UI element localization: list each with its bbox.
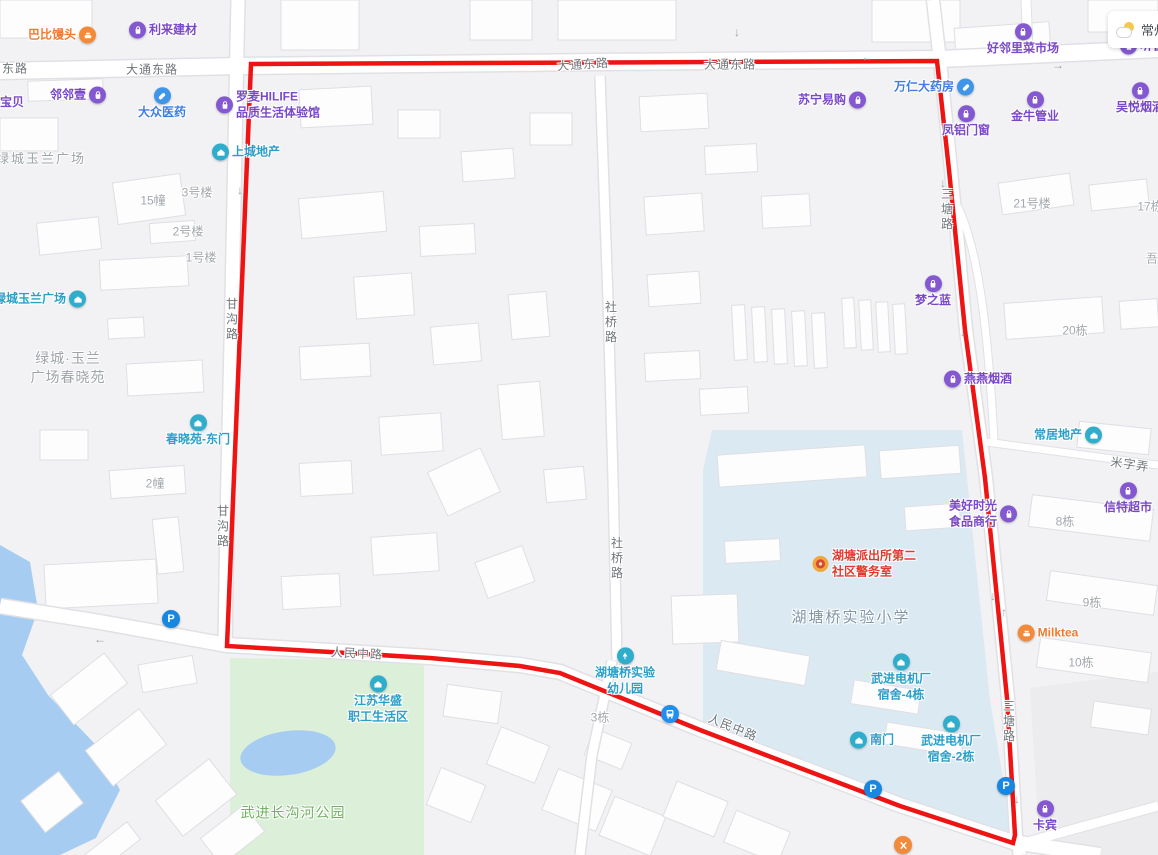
building xyxy=(792,311,808,367)
building xyxy=(298,191,386,238)
building xyxy=(671,594,739,644)
building xyxy=(1089,179,1149,211)
building xyxy=(36,217,101,255)
building xyxy=(461,148,515,182)
building xyxy=(812,313,828,369)
building xyxy=(354,273,415,319)
building xyxy=(419,224,475,257)
building xyxy=(28,79,104,102)
building xyxy=(299,461,353,497)
building xyxy=(558,0,676,40)
building xyxy=(893,304,908,355)
building xyxy=(647,271,701,307)
building xyxy=(109,465,186,498)
building xyxy=(281,0,359,50)
weather-widget[interactable]: 常州 xyxy=(1108,11,1158,48)
building xyxy=(1119,299,1158,330)
building xyxy=(761,194,811,228)
building xyxy=(732,305,748,361)
building xyxy=(0,0,92,38)
building xyxy=(40,430,88,460)
building xyxy=(44,559,158,609)
building xyxy=(371,533,439,576)
building xyxy=(126,360,204,396)
building xyxy=(876,302,891,353)
building xyxy=(724,539,780,564)
building xyxy=(699,387,748,415)
building xyxy=(379,413,443,455)
building xyxy=(644,351,700,382)
building xyxy=(99,256,188,291)
building xyxy=(530,113,572,145)
building xyxy=(508,291,550,339)
building xyxy=(281,574,341,610)
building xyxy=(498,381,545,439)
weather-city: 常州 xyxy=(1141,20,1158,39)
building xyxy=(644,193,705,235)
building xyxy=(879,445,961,479)
building xyxy=(772,309,788,365)
building xyxy=(299,86,373,128)
building xyxy=(639,93,709,132)
building xyxy=(108,317,145,339)
building xyxy=(0,118,58,151)
building xyxy=(859,300,874,351)
building xyxy=(149,220,195,243)
building xyxy=(904,503,961,531)
map-canvas[interactable]: 东路大通东路大通东路大通东路甘沟路甘沟路社桥路社桥路三塘路三塘路人民中路人民中路… xyxy=(0,0,1158,855)
building xyxy=(752,307,768,363)
weather-sun-cloud-icon xyxy=(1116,22,1136,38)
building xyxy=(872,0,960,42)
building xyxy=(1004,297,1104,340)
building xyxy=(398,110,440,138)
building xyxy=(112,173,185,224)
building xyxy=(430,323,481,365)
building xyxy=(470,0,532,40)
building xyxy=(544,466,587,502)
building xyxy=(704,144,757,175)
map-base-layer xyxy=(0,0,1158,855)
building xyxy=(299,343,371,380)
building xyxy=(152,517,184,574)
building xyxy=(842,298,857,349)
